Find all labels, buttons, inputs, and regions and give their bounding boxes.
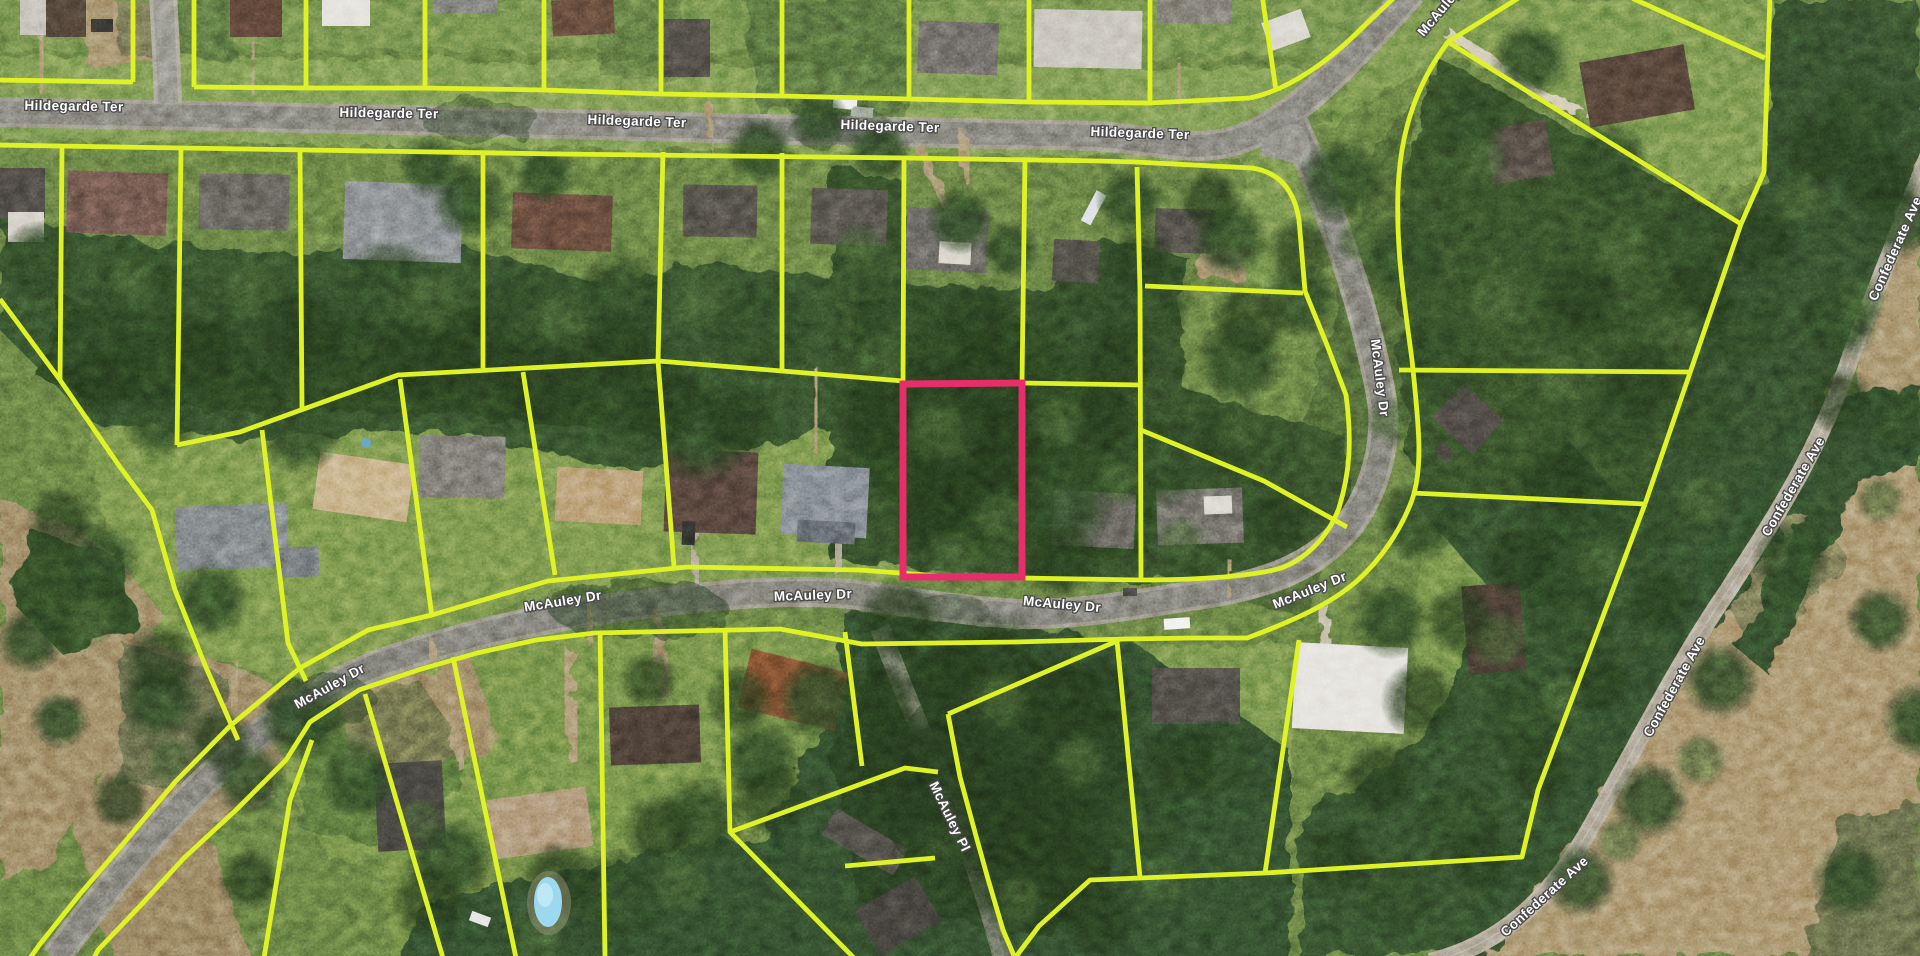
- svg-text:McAuley Dr: McAuley Dr: [774, 586, 853, 604]
- svg-text:Hildegarde Ter: Hildegarde Ter: [339, 105, 439, 122]
- svg-text:Hildegarde Ter: Hildegarde Ter: [24, 98, 124, 115]
